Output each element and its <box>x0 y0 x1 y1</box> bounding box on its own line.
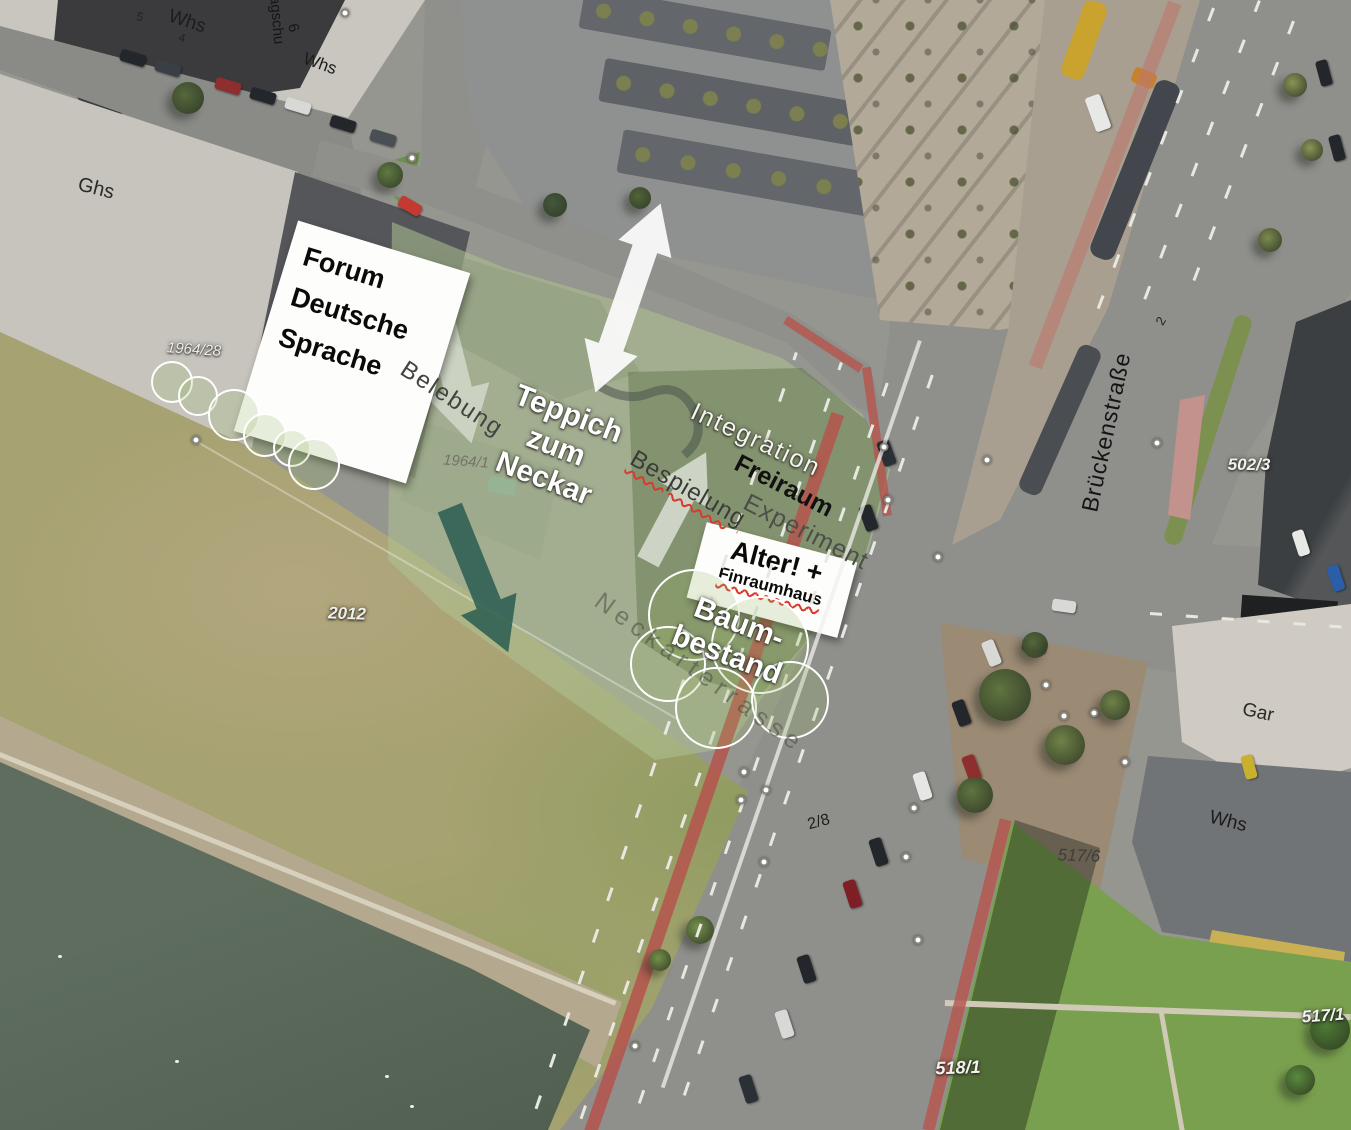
tree-canopy <box>1258 228 1282 252</box>
survey-point <box>914 936 923 945</box>
tree-canopy <box>543 193 567 217</box>
annotation-arrows-layer <box>0 0 1351 1130</box>
survey-point <box>1090 709 1099 718</box>
survey-point <box>192 436 201 445</box>
survey-point <box>737 796 746 805</box>
tree-canopy <box>1045 725 1085 765</box>
tree-circle-annotation <box>675 667 757 749</box>
arrow-teal <box>422 496 536 663</box>
tree-canopy <box>1022 632 1048 658</box>
tree-canopy <box>649 949 671 971</box>
survey-point <box>740 768 749 777</box>
arrow-bidirectional <box>569 194 687 401</box>
survey-point <box>983 456 992 465</box>
survey-point <box>880 443 889 452</box>
tree-canopy <box>172 82 204 114</box>
tree-canopy <box>629 187 651 209</box>
survey-point <box>1121 758 1130 767</box>
tree-circle-annotation <box>751 661 829 739</box>
survey-point <box>1153 439 1162 448</box>
bird-dot <box>410 1105 414 1108</box>
survey-point <box>1060 712 1069 721</box>
survey-point <box>760 858 769 867</box>
survey-point <box>884 496 893 505</box>
tree-circle-annotation <box>288 438 340 490</box>
survey-point <box>762 786 771 795</box>
stream-line <box>598 385 698 455</box>
bird-dot <box>58 955 62 958</box>
aerial-plan-map: Forum Deutsche Sprache Alter! + Finraumh… <box>0 0 1351 1130</box>
tree-canopy <box>979 669 1031 721</box>
survey-point <box>1042 681 1051 690</box>
survey-point <box>408 154 417 163</box>
tree-canopy <box>957 777 993 813</box>
survey-point <box>902 853 911 862</box>
tree-canopy <box>1301 139 1323 161</box>
survey-point <box>341 9 350 18</box>
bird-dot <box>175 1060 179 1063</box>
bird-dot <box>385 1075 389 1078</box>
tree-canopy <box>1283 73 1307 97</box>
survey-point <box>910 804 919 813</box>
survey-point <box>631 1042 640 1051</box>
tree-canopy <box>1310 1010 1350 1050</box>
tree-canopy <box>1100 690 1130 720</box>
tree-canopy <box>1285 1065 1315 1095</box>
survey-point <box>934 553 943 562</box>
tree-canopy <box>377 162 403 188</box>
